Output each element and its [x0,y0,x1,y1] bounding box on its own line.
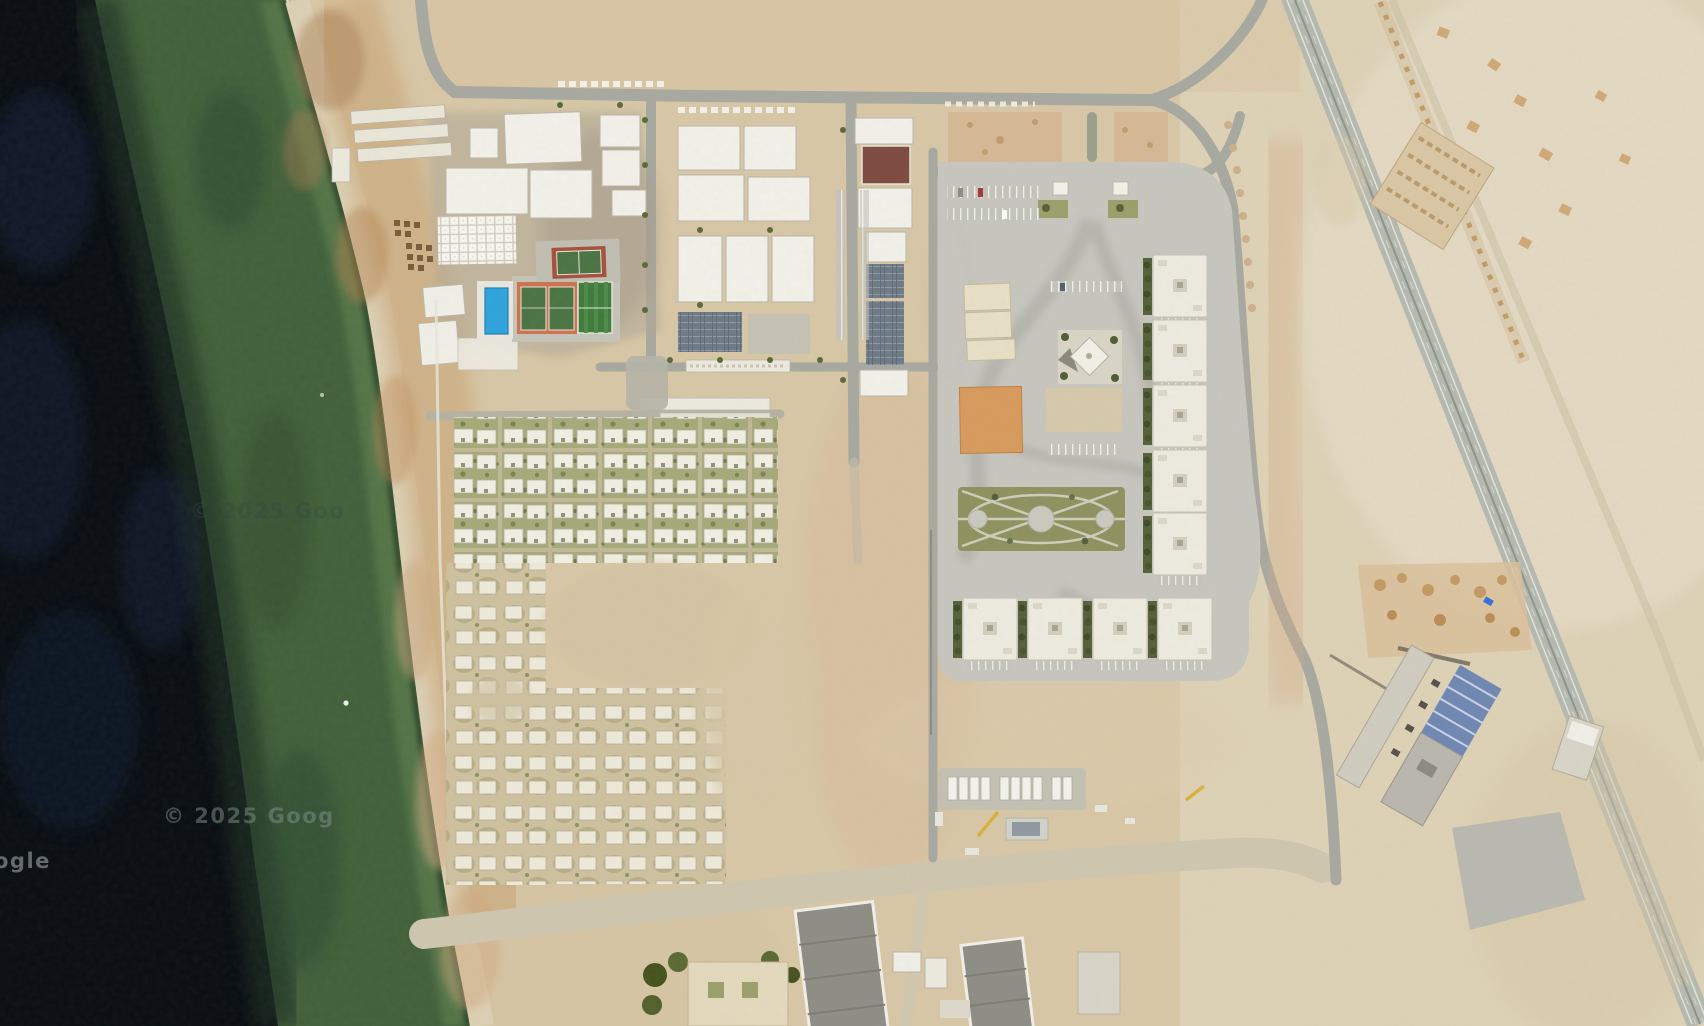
satellite-map-view: © 2025 Goo © 2025 Goog ogle [0,0,1704,1026]
map-canvas[interactable]: © 2025 Goo © 2025 Goog ogle [0,0,1704,1026]
watermark-attribution: © 2025 Goo [190,499,345,523]
watermark-attribution: ogle [0,849,51,873]
watermark-attribution: © 2025 Goog [163,804,335,828]
